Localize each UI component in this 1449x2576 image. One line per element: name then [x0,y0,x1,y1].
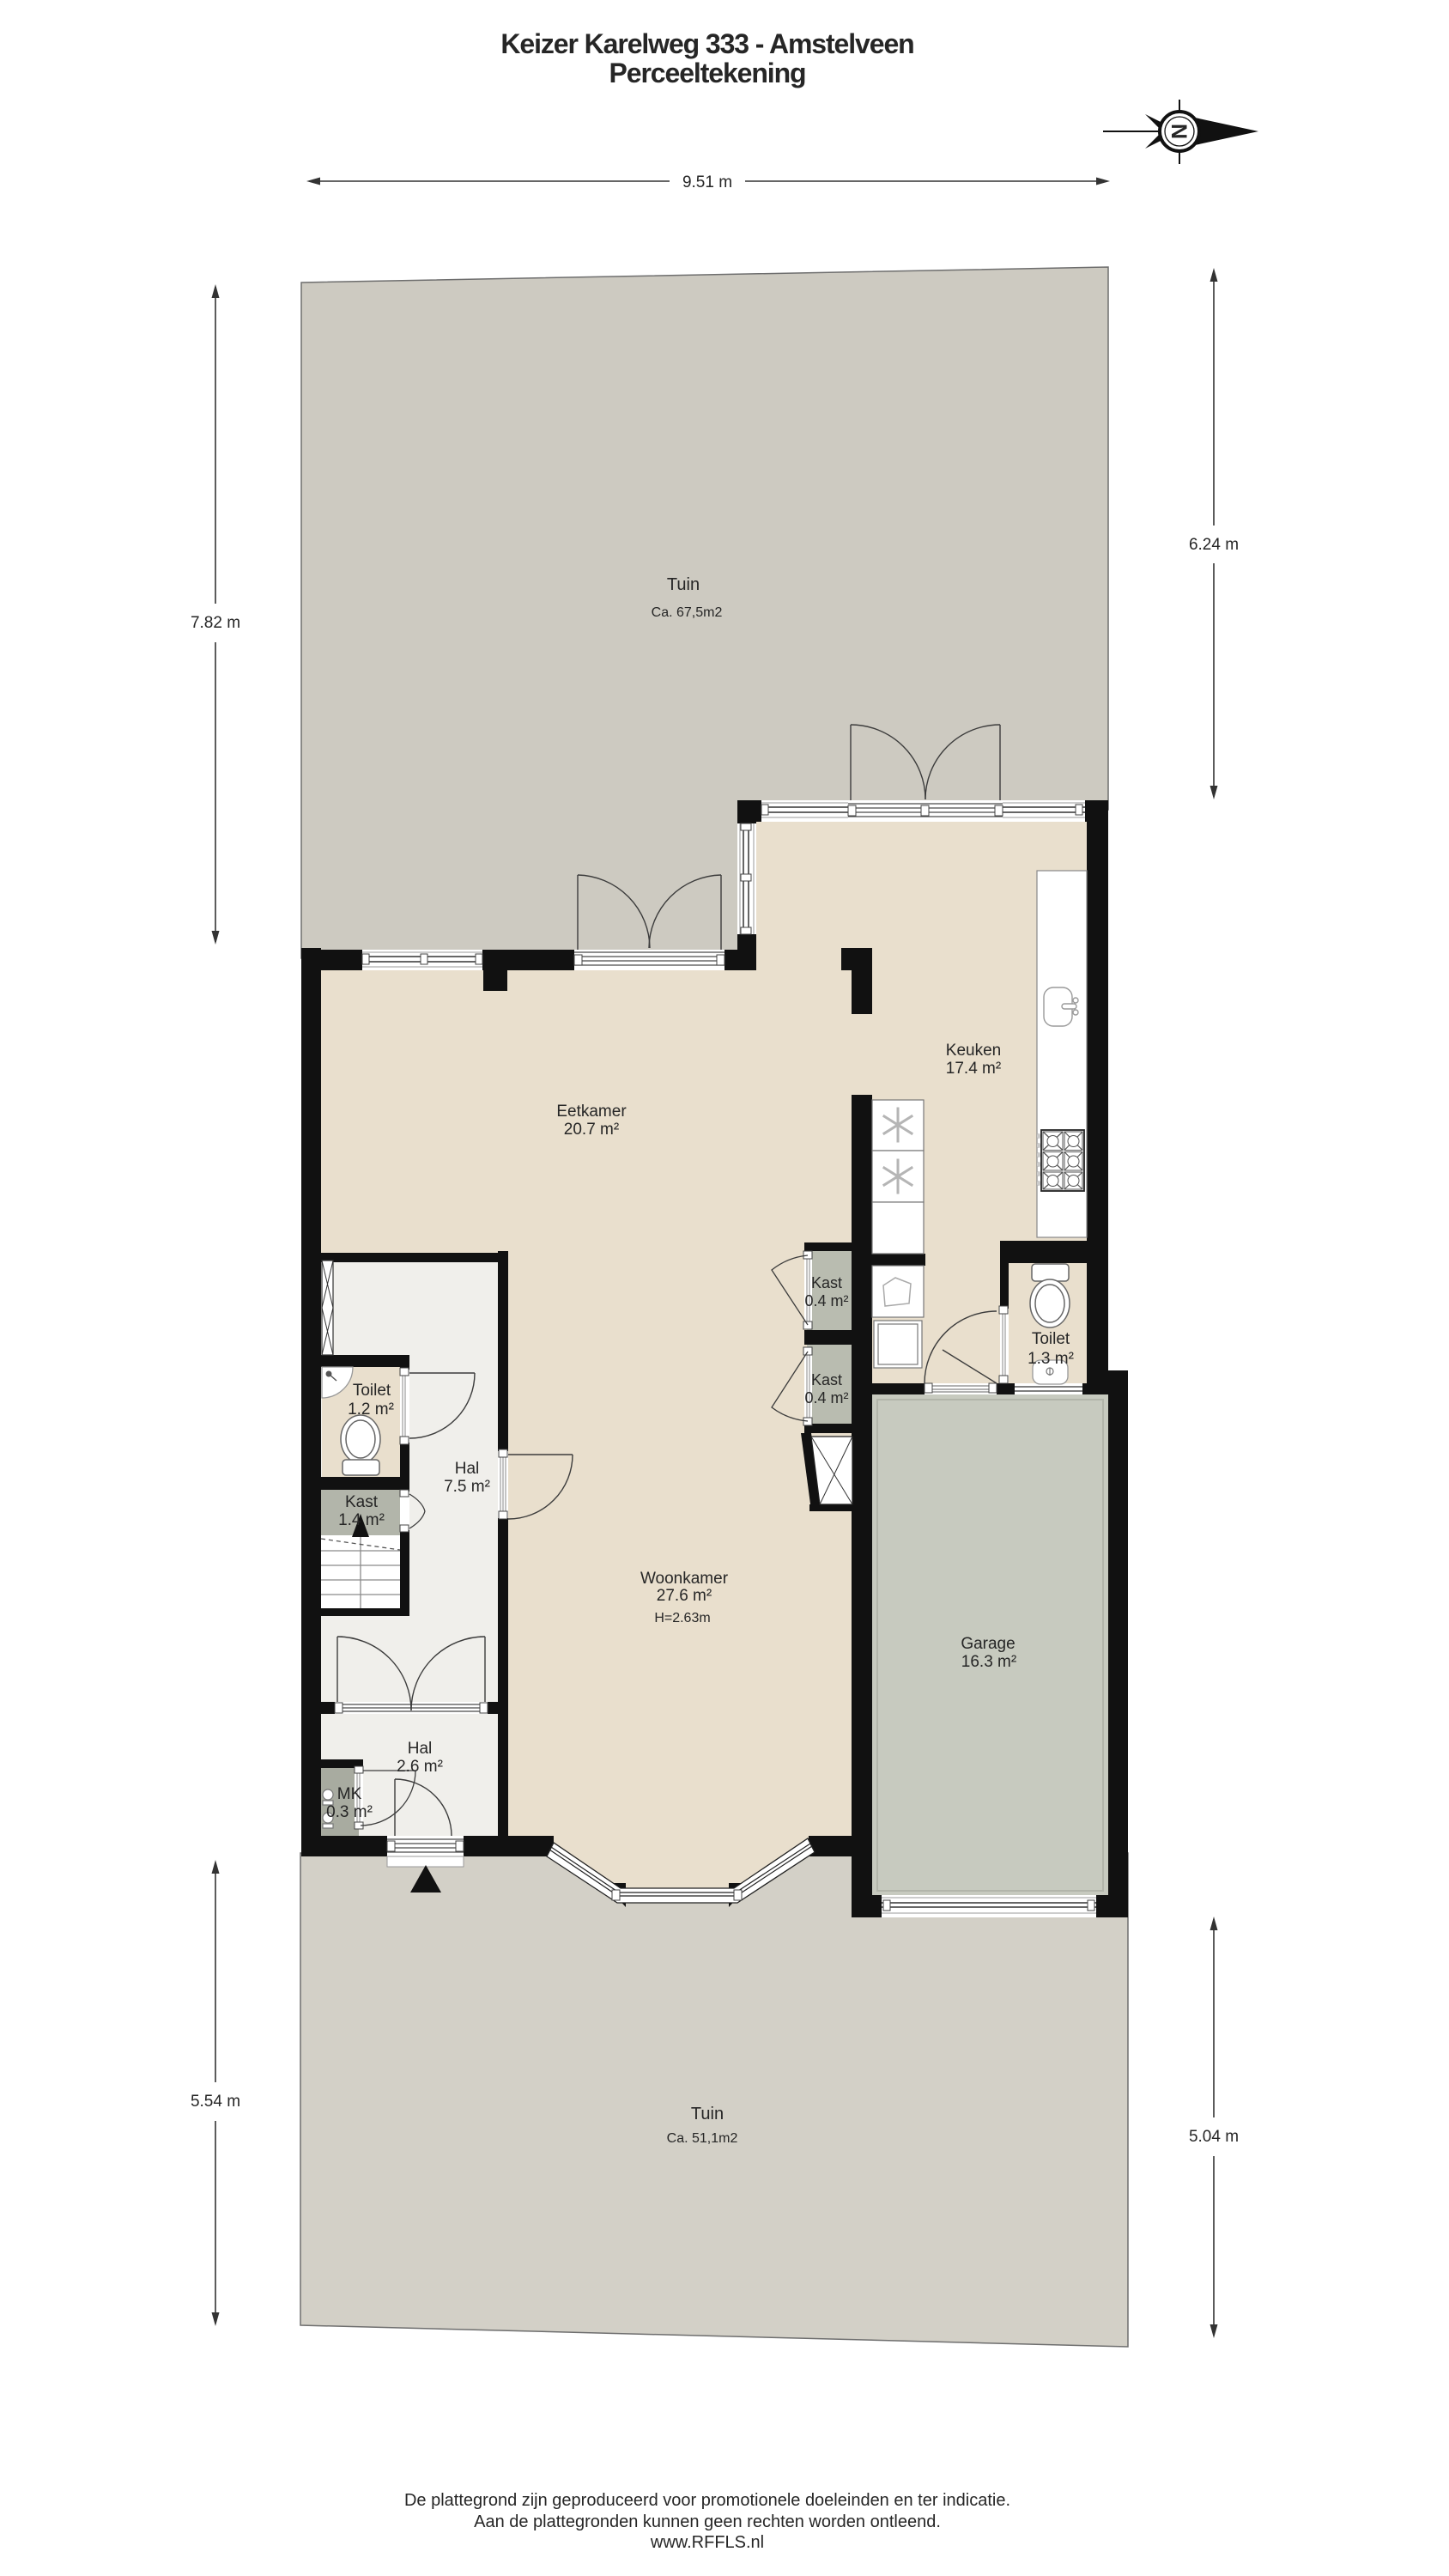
svg-text:1.4 m²: 1.4 m² [338,1511,385,1529]
svg-text:7.5 m²: 7.5 m² [444,1478,490,1496]
svg-text:Hal: Hal [455,1460,480,1478]
svg-text:Toilet: Toilet [1032,1330,1070,1348]
svg-text:9.51 m: 9.51 m [682,173,732,191]
svg-text:1.3 m²: 1.3 m² [1028,1350,1074,1368]
svg-text:6.24 m: 6.24 m [1189,536,1239,554]
svg-text:H=2.63m: H=2.63m [654,1611,710,1625]
svg-text:2.6 m²: 2.6 m² [397,1758,443,1776]
svg-text:Garage: Garage [961,1635,1015,1653]
svg-text:1.2 m²: 1.2 m² [348,1400,394,1419]
svg-text:www.RFFLS.nl: www.RFFLS.nl [650,2533,764,2552]
svg-text:Tuin: Tuin [691,2105,724,2123]
svg-text:Perceeltekening: Perceeltekening [609,58,806,88]
svg-text:Toilet: Toilet [353,1382,391,1400]
svg-text:20.7 m²: 20.7 m² [564,1121,619,1139]
svg-text:7.82 m: 7.82 m [191,614,240,632]
svg-text:N: N [1167,124,1191,139]
svg-text:17.4 m²: 17.4 m² [946,1060,1001,1078]
svg-text:0.4 m²: 0.4 m² [804,1292,848,1309]
svg-text:Tuin: Tuin [667,575,700,594]
svg-text:0.3 m²: 0.3 m² [326,1803,373,1821]
svg-text:27.6 m²: 27.6 m² [657,1587,712,1605]
svg-text:Hal: Hal [408,1740,433,1758]
svg-text:0.4 m²: 0.4 m² [804,1389,848,1406]
svg-text:Kast: Kast [345,1493,379,1511]
svg-text:Kast: Kast [811,1274,842,1291]
svg-text:Ca. 51,1m2: Ca. 51,1m2 [667,2131,738,2146]
svg-text:16.3 m²: 16.3 m² [961,1653,1016,1671]
svg-text:Eetkamer: Eetkamer [556,1103,627,1121]
svg-text:Kast: Kast [811,1371,842,1388]
svg-text:Woonkamer: Woonkamer [640,1570,729,1588]
svg-text:Ca. 67,5m2: Ca. 67,5m2 [652,605,723,620]
svg-text:5.54 m: 5.54 m [191,2093,240,2111]
svg-text:Keizer Karelweg 333 - Amstelve: Keizer Karelweg 333 - Amstelveen [500,28,913,59]
svg-text:Keuken: Keuken [946,1042,1001,1060]
svg-text:Aan de plattegronden kunnen ge: Aan de plattegronden kunnen geen rechten… [474,2512,941,2531]
svg-text:De plattegrond zijn geproducee: De plattegrond zijn geproduceerd voor pr… [404,2491,1010,2510]
svg-text:MK: MK [337,1785,362,1803]
svg-text:5.04 m: 5.04 m [1189,2128,1239,2146]
